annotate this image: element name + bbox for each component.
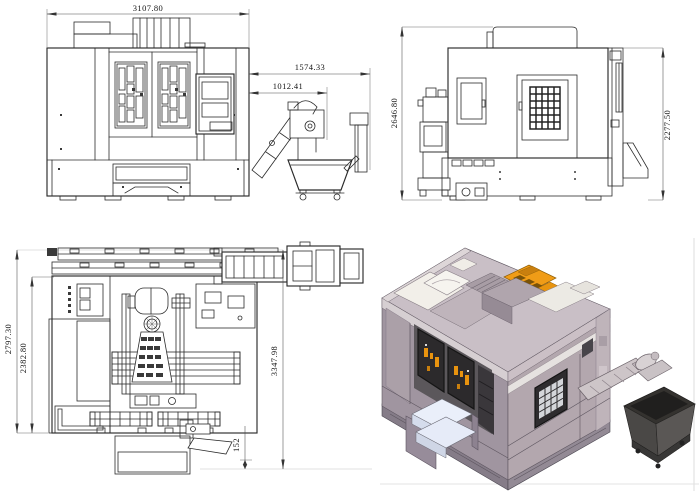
front-chip-drawer xyxy=(113,164,190,196)
dim-side-overall-height: 2646.80 xyxy=(390,98,399,128)
front-control-panel xyxy=(196,74,234,134)
dim-front-conveyor-overall: 1574.33 xyxy=(295,62,325,72)
top-view: 2797.30 2382.80 3347.98 152 xyxy=(0,236,380,493)
iso-chip-hopper xyxy=(624,387,695,469)
front-dark-column xyxy=(478,365,494,435)
front-view: 3107.80 1574.33 1012.41 xyxy=(0,0,390,236)
top-chip-conveyor xyxy=(214,242,363,290)
side-base xyxy=(442,158,612,200)
dim-top-service-offset: 152 xyxy=(231,438,241,452)
front-door-left-window xyxy=(115,62,147,128)
dim-top-depth-with-conveyor: 3347.98 xyxy=(269,346,279,376)
dim-top-overall-depth: 2797.30 xyxy=(3,324,13,354)
side-right-column xyxy=(608,48,648,186)
front-door-right-window xyxy=(158,62,190,128)
isometric-view xyxy=(380,236,699,493)
dim-front-conveyor-discharge: 1012.41 xyxy=(273,81,303,91)
drawing-sheet: 3107.80 1574.33 1012.41 xyxy=(0,0,699,493)
dim-side-body-height: 2277.50 xyxy=(662,110,672,140)
front-chip-conveyor xyxy=(252,101,368,200)
side-machine xyxy=(448,27,608,158)
top-front-units xyxy=(55,406,232,474)
dim-front-overall-width: 3107.80 xyxy=(133,3,163,13)
front-machine-head xyxy=(74,18,205,48)
side-left-units xyxy=(418,88,450,196)
side-view: 2646.80 2277.50 xyxy=(390,0,699,236)
dim-top-body-depth: 2382.80 xyxy=(18,343,28,373)
top-machine-body xyxy=(49,276,257,433)
